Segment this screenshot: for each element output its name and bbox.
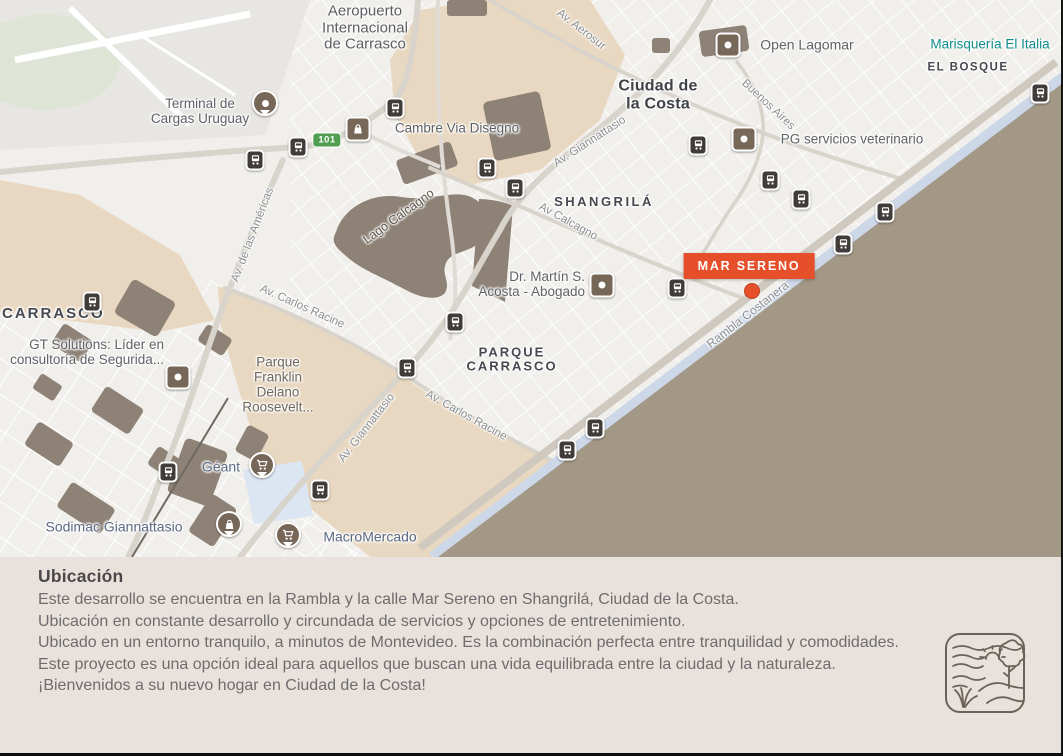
bus-stop-icon[interactable] [876,202,895,223]
bus-stop-icon[interactable] [159,462,178,483]
bus-stop-icon[interactable] [1031,83,1050,104]
description-paragraph: ¡Bienvenidos a su nuevo hogar en Ciudad … [38,675,963,697]
location-description-section: Ubicación Este desarrollo se encuentra e… [0,557,1063,753]
cambre-shopping-bag-icon[interactable] [346,117,371,142]
poi-label-pg-veterinario: PG servicios veterinario [781,133,924,148]
section-title: Ubicación [38,566,1063,587]
locality-label-shangrila: SHANGRILÁ [554,195,654,209]
poi-label-parque-franklin: Parque Franklin Delano Roosevelt... [242,355,313,414]
project-marker-label[interactable]: MAR SERENO [684,253,815,279]
poi-label-airport: Aeropuerto Internacional de Carrasco [322,3,408,53]
listing-page: Aeropuerto Internacional de Carrasco Ter… [0,0,1063,756]
bus-stop-icon[interactable] [386,98,405,119]
poi-label-dr-martin: Dr. Martín S. Acosta - Abogado [455,270,585,300]
bus-stop-icon[interactable] [792,189,811,210]
bus-stop-icon[interactable] [83,292,102,313]
terminal-cargas-pin-icon[interactable] [252,90,278,116]
poi-label-terminal-cargas: Terminal de Cargas Uruguay [151,97,249,127]
bus-stop-icon[interactable] [506,178,525,199]
bus-stop-icon[interactable] [586,418,605,439]
bus-stop-icon[interactable] [689,135,708,156]
route-101-badge: 101 [313,134,340,147]
poi-label-geant: Géant [202,459,240,474]
macromercado-cart-icon[interactable] [275,522,301,548]
locality-label-ciudad-de-la-costa: Ciudad de la Costa [618,77,697,112]
description-paragraph: Este proyecto es una opción ideal para a… [38,654,963,676]
bus-stop-icon[interactable] [478,158,497,179]
poi-label-macromercado: MacroMercado [323,529,416,544]
bus-stop-icon[interactable] [668,278,687,299]
poi-label-open-lagomar: Open Lagomar [760,37,853,52]
poi-label-sodimac: Sodimac Giannattasio [46,519,183,534]
bus-stop-icon[interactable] [761,170,780,191]
description-paragraph: Este desarrollo se encuentra en la Rambl… [38,589,963,611]
dr-martin-pin-icon[interactable] [590,273,615,298]
bus-stop-icon[interactable] [834,234,853,255]
project-marker-dot[interactable] [744,283,760,299]
locality-label-el-bosque: EL BOSQUE [927,62,1008,75]
locality-label-parque-carrasco: PARQUE CARRASCO [466,346,557,375]
bus-stop-icon[interactable] [446,312,465,333]
bus-stop-icon[interactable] [289,137,308,158]
gt-solutions-pin-icon[interactable] [166,365,191,390]
sodimac-bag-icon[interactable] [216,511,242,537]
open-lagomar-pin-icon[interactable] [716,33,741,58]
description-paragraph: Ubicado en un entorno tranquilo, a minut… [38,632,963,654]
bus-stop-icon[interactable] [311,480,330,501]
description-paragraph: Ubicación en constante desarrollo y circ… [38,611,963,633]
bus-stop-icon[interactable] [246,150,265,171]
poi-label-cambre: Cambre Via Disegno [395,122,519,137]
landscape-scene-icon [943,631,1027,720]
bus-stop-icon[interactable] [558,440,577,461]
poi-label-gt-solutions: GT Solutions: Líder en consultoría de Se… [0,338,164,368]
geant-cart-icon[interactable] [249,452,275,478]
poi-label-marisqueria: Marisquería El Italia [930,38,1049,53]
pg-veterinario-pin-icon[interactable] [732,127,757,152]
bus-stop-icon[interactable] [398,358,417,379]
location-map[interactable]: Aeropuerto Internacional de Carrasco Ter… [0,0,1063,557]
